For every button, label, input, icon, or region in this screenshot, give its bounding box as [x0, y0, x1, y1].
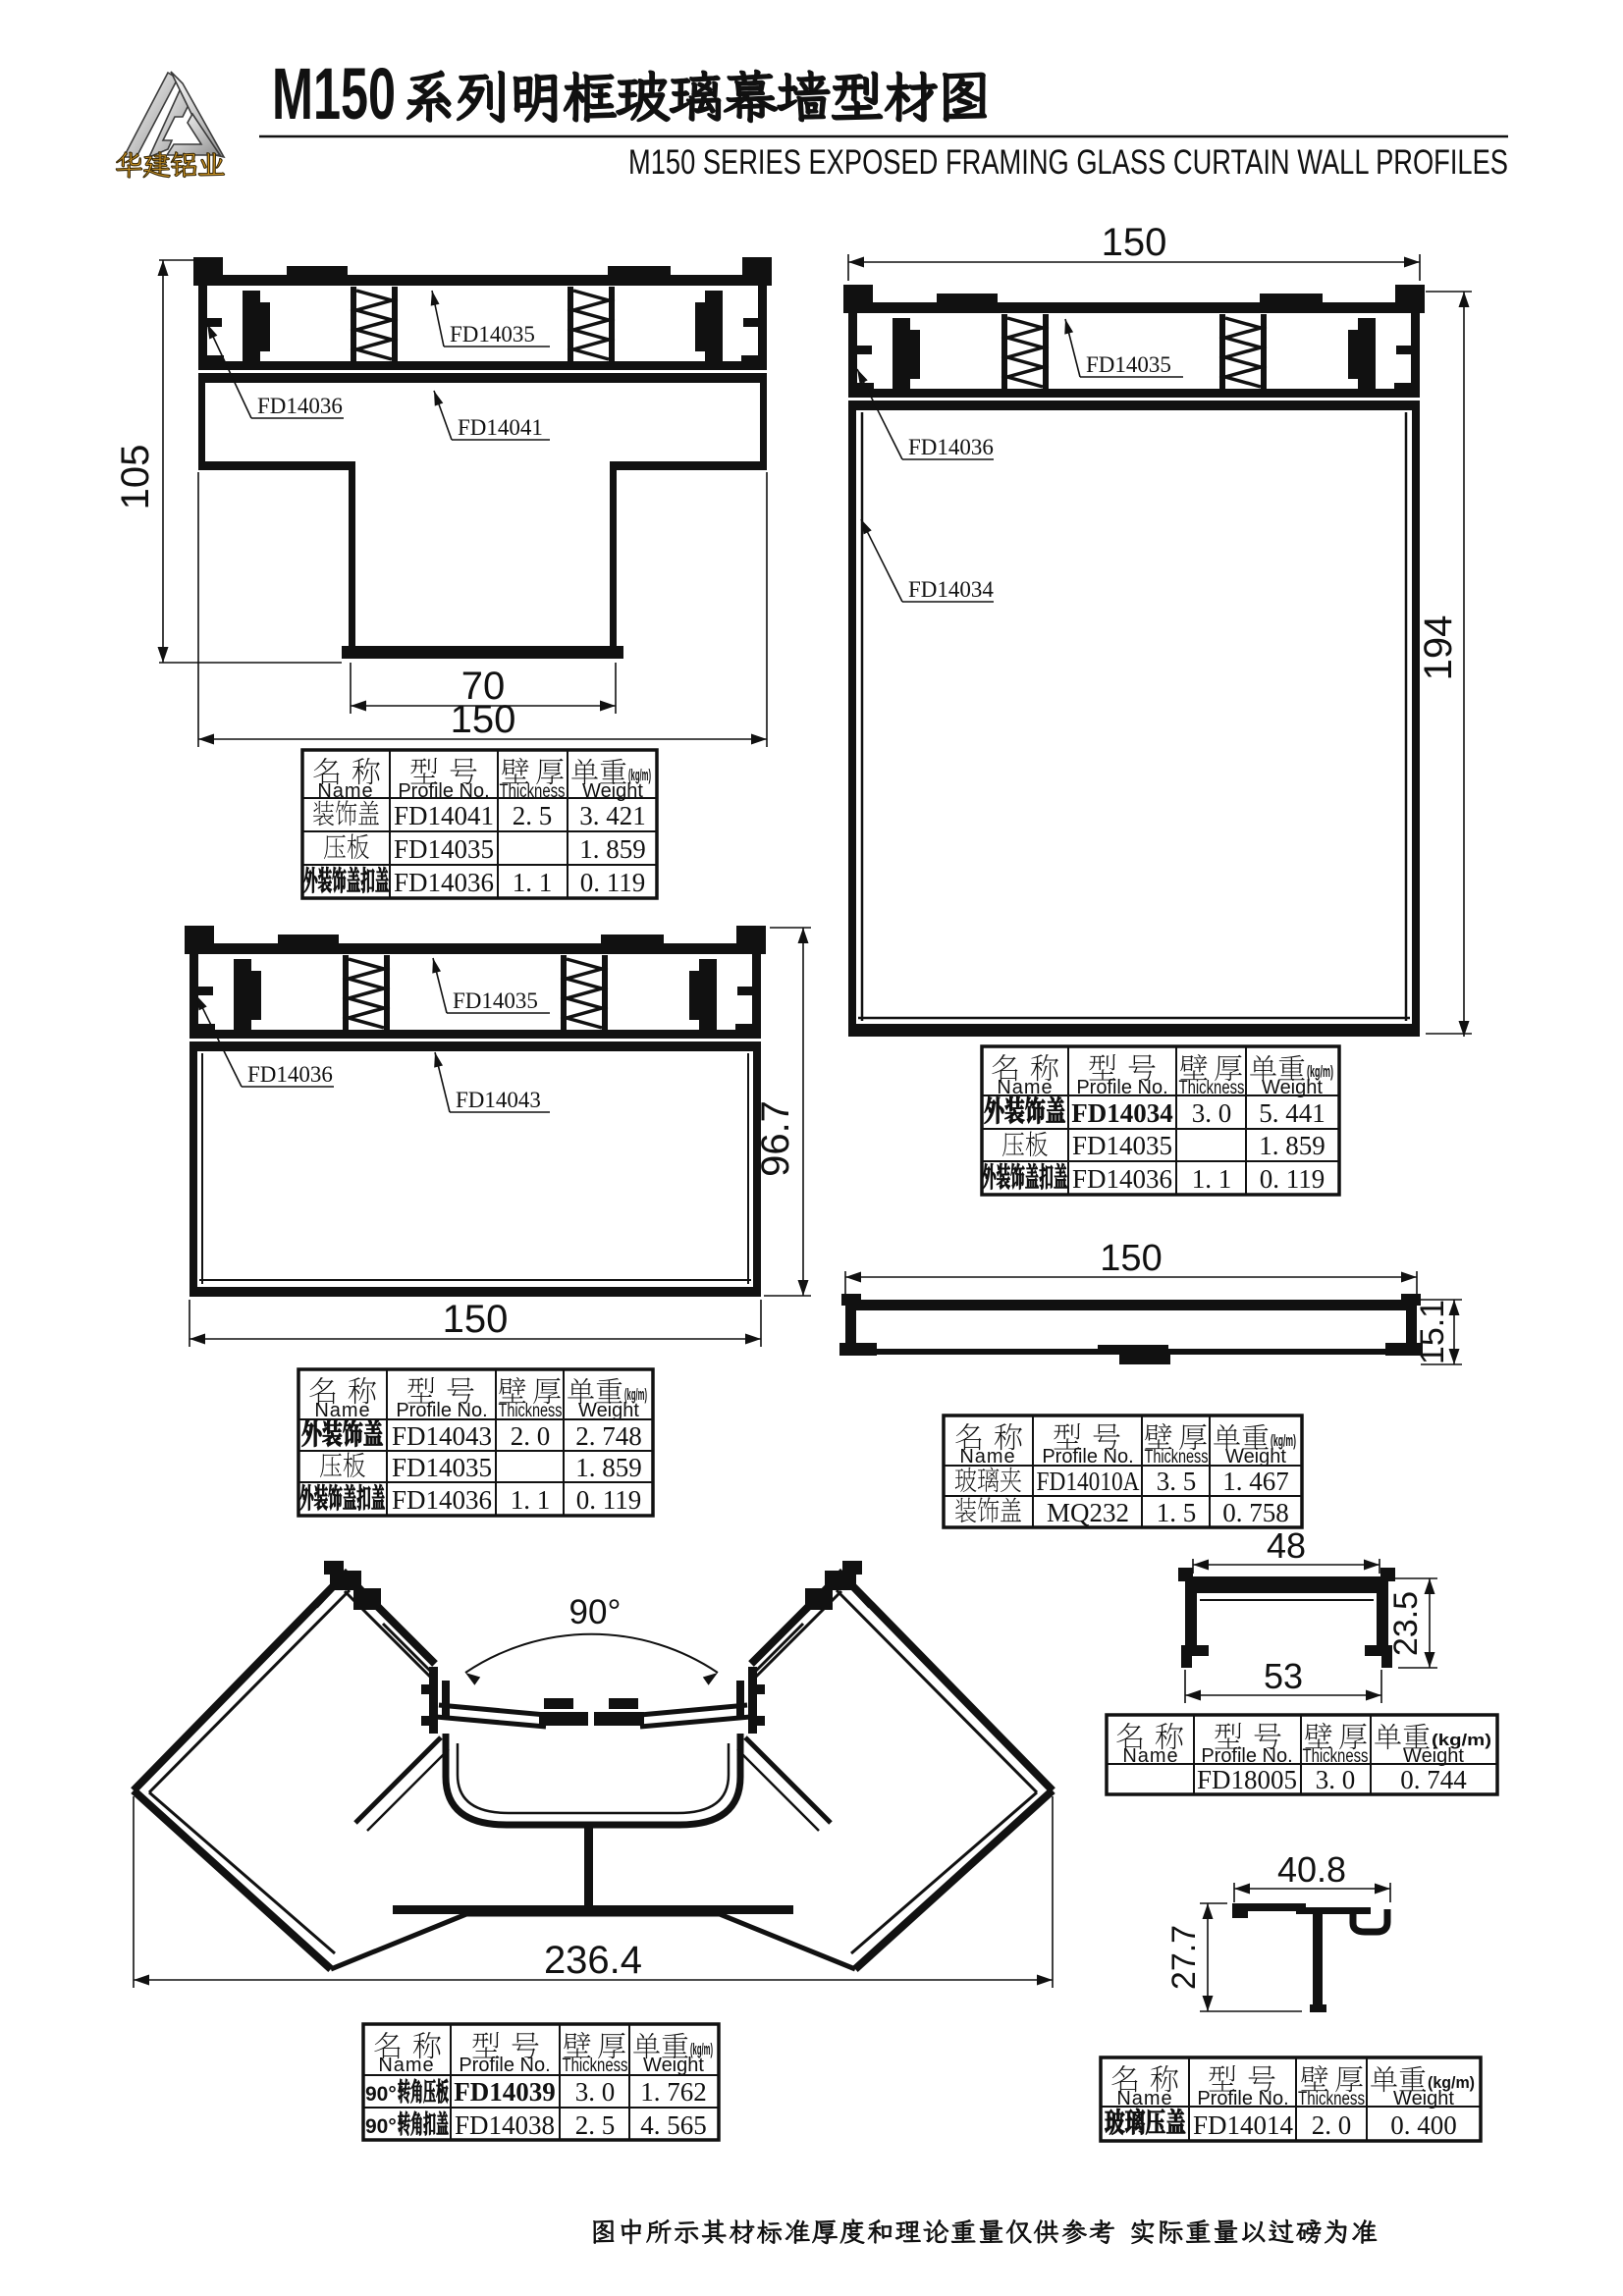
svg-text:3. 421: 3. 421 [579, 801, 646, 830]
svg-text:105: 105 [114, 445, 157, 510]
svg-text:FD14014: FD14014 [1193, 2110, 1294, 2140]
svg-text:2. 5: 2. 5 [575, 2110, 616, 2140]
svg-text:Thickness: Thickness [1179, 1078, 1245, 1098]
svg-text:FD14041: FD14041 [394, 801, 494, 830]
svg-text:FD14035: FD14035 [394, 834, 494, 864]
svg-text:FD14043: FD14043 [456, 1088, 541, 1112]
svg-text:MQ232: MQ232 [1047, 1498, 1129, 1527]
svg-text:FD14036: FD14036 [1072, 1164, 1172, 1194]
svg-text:1. 5: 1. 5 [1157, 1498, 1197, 1527]
svg-text:Profile No.: Profile No. [459, 2055, 550, 2076]
svg-text:15.1: 15.1 [1414, 1300, 1451, 1364]
svg-text:1. 859: 1. 859 [575, 1453, 642, 1482]
svg-text:FD18005: FD18005 [1197, 1765, 1297, 1794]
svg-text:Thickness: Thickness [499, 1401, 563, 1421]
svg-text:1. 467: 1. 467 [1222, 1467, 1289, 1496]
svg-text:Weight: Weight [578, 1400, 639, 1421]
svg-text:0. 744: 0. 744 [1400, 1765, 1467, 1794]
svg-text:Thickness: Thickness [1145, 1447, 1209, 1468]
svg-text:Name: Name [997, 1077, 1053, 1098]
svg-text:FD14034: FD14034 [908, 577, 994, 602]
svg-text:FD14036: FD14036 [394, 868, 494, 897]
svg-text:27.7: 27.7 [1165, 1925, 1203, 1990]
svg-text:4. 565: 4. 565 [640, 2110, 707, 2140]
svg-text:194: 194 [1417, 615, 1460, 681]
svg-text:FD14039: FD14039 [454, 2077, 556, 2107]
svg-text:2. 0: 2. 0 [1312, 2110, 1352, 2140]
svg-text:Weight: Weight [1403, 1745, 1464, 1767]
svg-text:1. 859: 1. 859 [1259, 1131, 1325, 1160]
svg-text:5. 441: 5. 441 [1259, 1098, 1325, 1128]
svg-text:Weight: Weight [643, 2055, 704, 2076]
svg-text:FD14034: FD14034 [1071, 1098, 1173, 1128]
svg-text:Weight: Weight [1262, 1077, 1323, 1098]
svg-text:150: 150 [451, 698, 516, 741]
svg-text:FD14010A: FD14010A [1037, 1467, 1140, 1496]
svg-text:236.4: 236.4 [544, 1939, 642, 1982]
svg-text:2. 748: 2. 748 [575, 1421, 642, 1451]
svg-text:150: 150 [1100, 1238, 1162, 1279]
svg-text:Name: Name [1122, 1745, 1178, 1767]
svg-text:90°: 90° [569, 1593, 622, 1631]
svg-text:Profile No.: Profile No. [1197, 2088, 1288, 2109]
svg-text:3. 0: 3. 0 [1316, 1765, 1356, 1794]
svg-text:Name: Name [378, 2055, 434, 2076]
svg-text:FD14036: FD14036 [257, 394, 343, 418]
svg-text:FD14041: FD14041 [458, 415, 543, 440]
svg-text:FD14035: FD14035 [450, 322, 535, 347]
svg-text:FD14036: FD14036 [908, 435, 994, 459]
svg-text:1. 1: 1. 1 [511, 1485, 551, 1515]
svg-text:FD14035: FD14035 [453, 988, 538, 1013]
svg-text:90°: 90° [365, 2083, 397, 2106]
svg-text:1. 859: 1. 859 [579, 834, 646, 864]
svg-text:Name: Name [317, 780, 373, 802]
svg-text:FD14043: FD14043 [392, 1421, 492, 1451]
svg-text:0. 119: 0. 119 [1260, 1164, 1325, 1194]
svg-text:Profile No.: Profile No. [396, 1400, 487, 1421]
svg-text:0. 758: 0. 758 [1222, 1498, 1289, 1527]
svg-text:M150 SERIES EXPOSED FRAMING G: M150 SERIES EXPOSED FRAMING GLASS CURTAI… [628, 143, 1508, 182]
svg-text:FD14035: FD14035 [1086, 352, 1171, 377]
svg-text:Weight: Weight [582, 780, 643, 802]
svg-text:Profile No.: Profile No. [1042, 1446, 1133, 1468]
svg-text:FD14036: FD14036 [247, 1062, 333, 1087]
svg-text:23.5: 23.5 [1387, 1591, 1425, 1656]
svg-text:Weight: Weight [1225, 1446, 1286, 1468]
svg-text:0. 119: 0. 119 [580, 868, 646, 897]
svg-text:M150: M150 [272, 53, 396, 134]
svg-text:3. 0: 3. 0 [1192, 1098, 1232, 1128]
svg-text:Profile No.: Profile No. [1201, 1745, 1292, 1767]
svg-text:Thickness: Thickness [563, 2056, 628, 2076]
svg-text:1. 1: 1. 1 [1192, 1164, 1232, 1194]
svg-text:Thickness: Thickness [500, 781, 566, 802]
svg-text:Thickness: Thickness [1303, 1746, 1369, 1767]
svg-text:3. 0: 3. 0 [575, 2077, 616, 2107]
svg-text:3. 5: 3. 5 [1157, 1467, 1197, 1496]
svg-text:53: 53 [1264, 1656, 1303, 1696]
svg-text:Thickness: Thickness [1298, 2089, 1365, 2109]
svg-text:Profile No.: Profile No. [398, 780, 489, 802]
svg-text:1. 762: 1. 762 [640, 2077, 707, 2107]
svg-text:Name: Name [314, 1400, 370, 1421]
svg-text:0. 400: 0. 400 [1390, 2110, 1457, 2140]
svg-text:FD14036: FD14036 [392, 1485, 492, 1515]
svg-text:2. 0: 2. 0 [511, 1421, 551, 1451]
svg-text:Profile No.: Profile No. [1076, 1077, 1167, 1098]
svg-text:90°: 90° [365, 2115, 397, 2138]
svg-text:40.8: 40.8 [1277, 1849, 1346, 1890]
svg-text:Weight: Weight [1393, 2088, 1454, 2109]
svg-text:96.7: 96.7 [754, 1100, 797, 1177]
svg-text:FD14038: FD14038 [455, 2110, 555, 2140]
svg-text:2. 5: 2. 5 [513, 801, 553, 830]
svg-text:1. 1: 1. 1 [513, 868, 553, 897]
svg-text:Name: Name [959, 1446, 1015, 1468]
svg-text:FD14035: FD14035 [392, 1453, 492, 1482]
svg-text:FD14035: FD14035 [1072, 1131, 1172, 1160]
svg-text:Name: Name [1116, 2088, 1172, 2109]
svg-text:48: 48 [1267, 1525, 1306, 1566]
svg-text:150: 150 [1102, 221, 1167, 264]
svg-text:0. 119: 0. 119 [576, 1485, 642, 1515]
svg-text:150: 150 [443, 1298, 509, 1341]
